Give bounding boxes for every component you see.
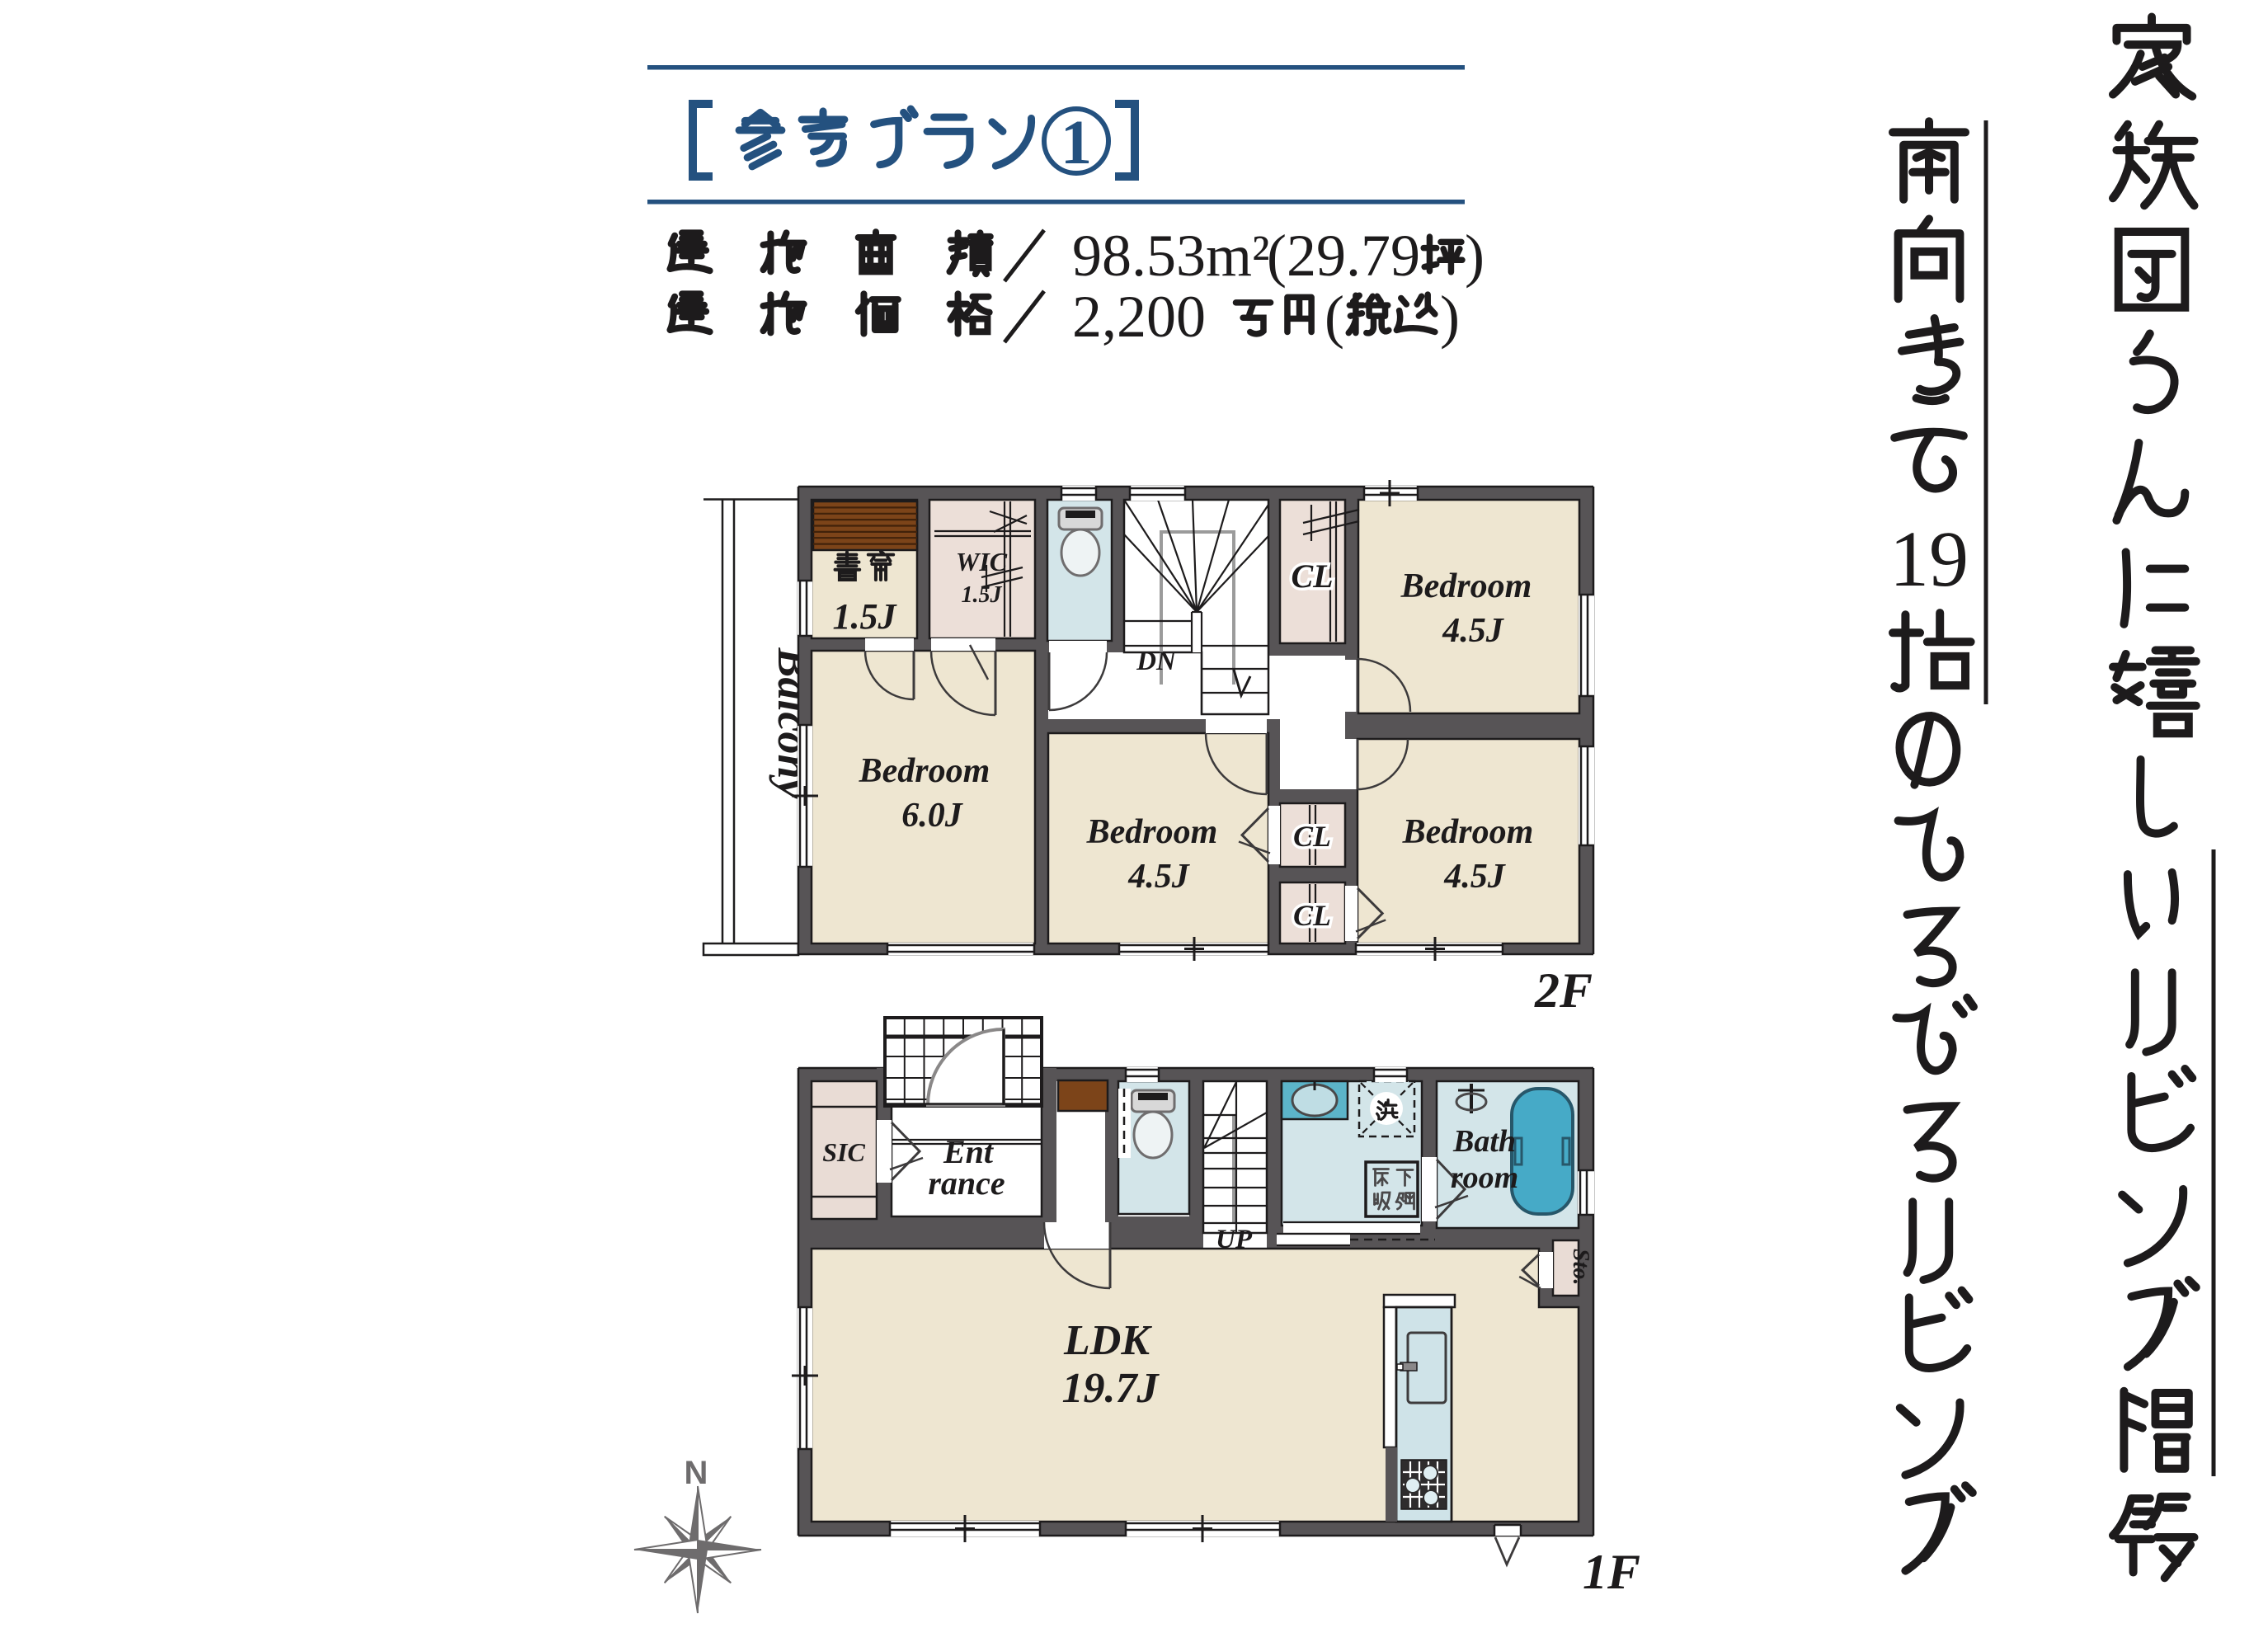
svg-text:WIC: WIC <box>956 547 1008 576</box>
svg-text:19.7J: 19.7J <box>1062 1365 1160 1412</box>
svg-text:LDK: LDK <box>1063 1317 1152 1364</box>
svg-text:): ) <box>1440 284 1460 350</box>
svg-text:CL: CL <box>1293 820 1331 853</box>
svg-text:98.53m²: 98.53m² <box>1072 223 1270 289</box>
svg-text:4.5J: 4.5J <box>1443 858 1507 896</box>
svg-text:1F: 1F <box>1583 1545 1640 1599</box>
svg-text:CL: CL <box>1293 899 1331 932</box>
svg-text:SIC: SIC <box>822 1137 865 1167</box>
svg-text:4.5J: 4.5J <box>1127 858 1191 896</box>
svg-text:Bath: Bath <box>1452 1124 1516 1159</box>
svg-text:room: room <box>1451 1160 1518 1195</box>
svg-text:4.5J: 4.5J <box>1442 612 1505 650</box>
svg-text:): ) <box>1465 223 1485 289</box>
svg-text:Bedroom: Bedroom <box>1086 813 1218 851</box>
svg-text:(29.79: (29.79 <box>1267 223 1420 289</box>
svg-text:2F: 2F <box>1534 963 1593 1018</box>
svg-text:1.5J: 1.5J <box>962 582 1003 608</box>
svg-text:CL: CL <box>1291 558 1333 595</box>
svg-text:(: ( <box>1325 284 1344 350</box>
svg-text:6.0J: 6.0J <box>901 797 964 835</box>
svg-text:Sto.: Sto. <box>1568 1249 1593 1285</box>
svg-text:Bedroom: Bedroom <box>859 752 990 790</box>
svg-text:N: N <box>685 1455 708 1491</box>
svg-text:rance: rance <box>928 1165 1005 1202</box>
svg-text:19: 19 <box>1889 515 1969 603</box>
svg-text:DN: DN <box>1136 647 1177 676</box>
svg-text:2,200: 2,200 <box>1072 284 1206 350</box>
svg-text:Bedroom: Bedroom <box>1402 813 1534 851</box>
svg-text:1.5J: 1.5J <box>833 596 898 637</box>
svg-text:UP: UP <box>1216 1225 1253 1254</box>
svg-text:1: 1 <box>1061 108 1092 177</box>
svg-text:Bedroom: Bedroom <box>1400 567 1532 605</box>
